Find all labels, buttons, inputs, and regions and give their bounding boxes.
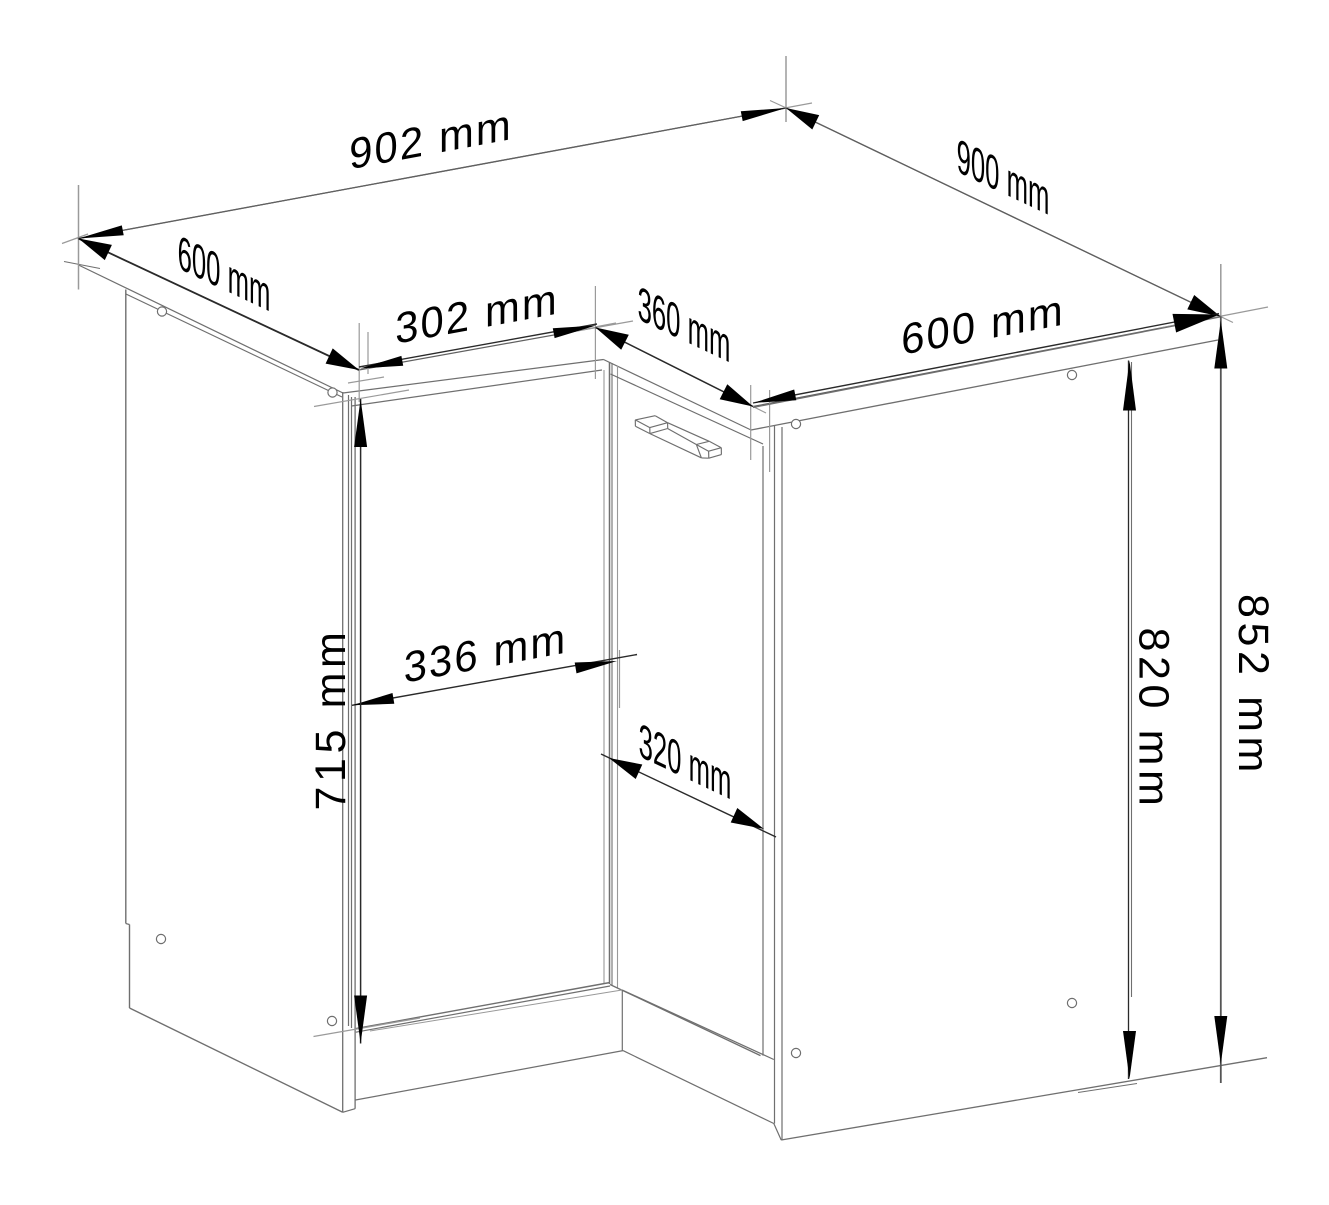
svg-text:820 mm: 820 mm: [1130, 628, 1178, 811]
svg-text:715 mm: 715 mm: [307, 628, 355, 811]
svg-text:852 mm: 852 mm: [1229, 594, 1277, 777]
